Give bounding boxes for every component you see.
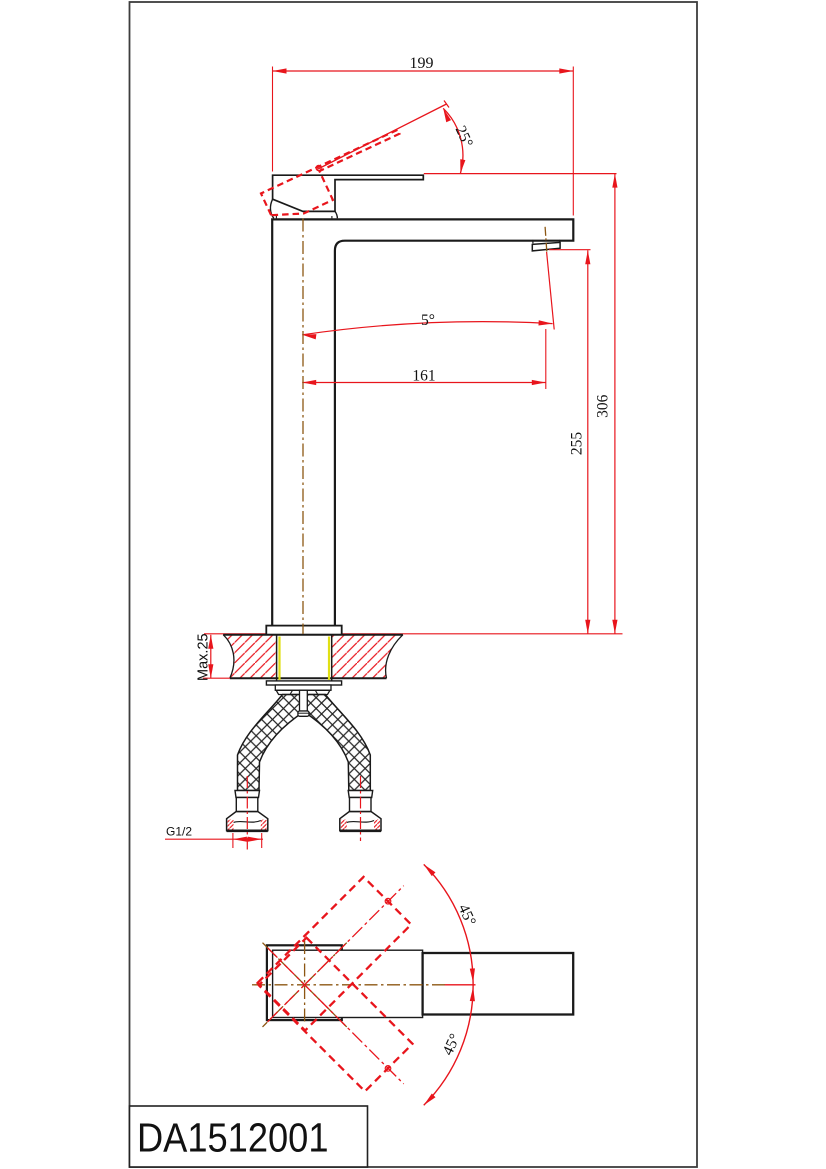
svg-text:306: 306	[595, 394, 612, 418]
svg-text:45°: 45°	[455, 902, 480, 929]
svg-text:5°: 5°	[421, 312, 435, 329]
svg-text:G1/2: G1/2	[166, 824, 192, 838]
svg-text:161: 161	[412, 368, 435, 385]
svg-text:Max.25: Max.25	[195, 633, 211, 681]
svg-text:DA1512001: DA1512001	[137, 1115, 329, 1161]
svg-text:25°: 25°	[452, 123, 477, 150]
svg-text:255: 255	[569, 432, 586, 456]
svg-text:45°: 45°	[439, 1031, 464, 1058]
svg-text:199: 199	[410, 55, 434, 72]
